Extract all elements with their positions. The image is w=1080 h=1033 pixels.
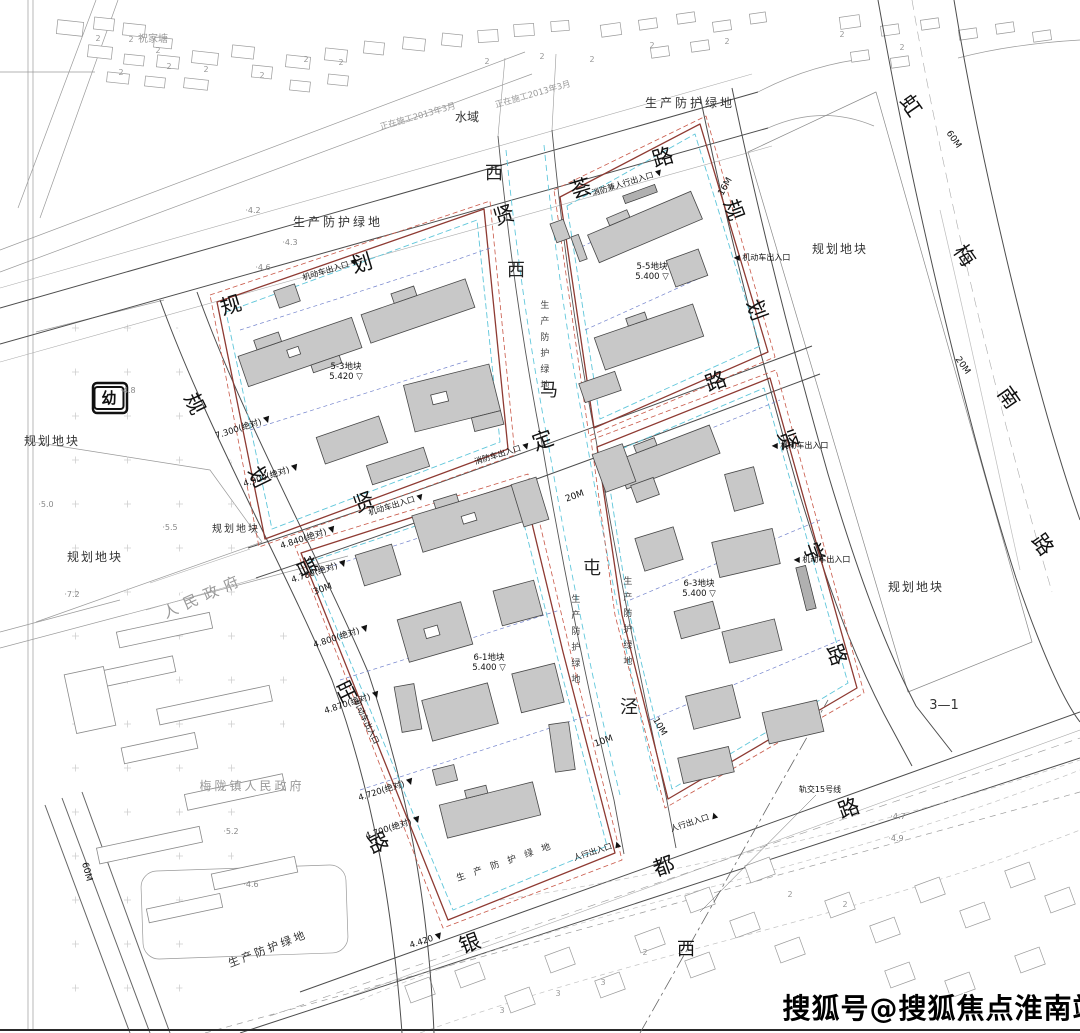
road-yindu-label: 路 <box>835 794 863 825</box>
storey-numbers-label: 2 <box>166 62 171 72</box>
storey-numbers-label: 2 <box>118 68 123 78</box>
entrances-label: 机动车出入口 ▼ <box>301 257 358 283</box>
road-yindu-label: 银 <box>456 929 484 960</box>
storey-numbers-label: 3 <box>499 1006 504 1016</box>
storey-numbers-label: 2 <box>95 34 100 44</box>
road-puwang-label: 规 <box>178 389 210 419</box>
storey-numbers-label: 2 <box>649 41 654 51</box>
watermark: 搜狐号@搜狐焦点淮南站 <box>782 992 1080 1026</box>
road-xianhui-label: 路 <box>649 143 676 173</box>
entrances-label: ◀ 机动车出入口 <box>772 441 829 451</box>
spot-elevations-label: ·5.2 <box>223 827 238 837</box>
road-elevations-label: 4.700(绝对) ▼ <box>364 814 422 841</box>
green-belts-label: 生产防护绿地 <box>226 928 309 970</box>
dimensions-label: 30M <box>312 582 334 599</box>
road-xianxue-label: 规 <box>718 196 749 224</box>
storey-numbers-label: 2 <box>155 46 160 56</box>
parcels-label: 规划地块 <box>212 524 260 536</box>
green-belts-label: 生产防护绿地 <box>621 576 632 672</box>
entrances-label: 消防兼人行出入口 ▼ <box>591 168 663 198</box>
entrances-label: 人行出入口 ▲ <box>572 839 621 863</box>
entrances-label: ◀ 机动车出入口 <box>734 253 791 263</box>
dimensions-label: 60M <box>78 861 93 882</box>
dimensions-label: 16M <box>717 176 736 198</box>
storey-numbers-label: 2 <box>203 65 208 75</box>
parcels-label: 祝家塘 <box>138 34 168 46</box>
green-belts-label: 生产防护绿地 <box>293 215 383 229</box>
entrances-label: 人行出入口 ▲ <box>669 810 718 834</box>
storey-numbers-label: 2 <box>642 948 647 958</box>
spot-elevations-label: ·4.2 <box>245 206 260 216</box>
spot-elevations-label: ·4.6 <box>255 263 270 273</box>
dimensions-label: 10M <box>593 734 615 751</box>
spot-elevations-label: ·4.6 <box>243 880 258 890</box>
green-belts-label: 生产防护绿地 <box>455 839 561 884</box>
road-yindu-label: 西 <box>677 939 695 961</box>
storey-numbers-label: 2 <box>259 71 264 81</box>
road-elevations-label: 4.840(绝对) ▼ <box>279 524 337 551</box>
spot-elevations-label: ·4.3 <box>282 238 297 248</box>
storey-numbers-label: 2 <box>589 55 594 65</box>
creek-ximatunjing-label: 泾 <box>620 697 638 719</box>
construction-notes-label: 正在施工2013年3月 <box>494 79 572 110</box>
dimensions-label: 20M <box>952 355 972 377</box>
road-xianhui-label: 贤 <box>490 201 517 231</box>
parcels-label: 梅陇镇人民政府 <box>199 779 304 793</box>
creek-ximatunjing-label: 屯 <box>583 558 601 580</box>
storey-numbers-label: 2 <box>539 52 544 62</box>
site-plan-canvas: 规划贤荟路规划普旺路贤定路规划贤学路银都路西虹梅南路西西马屯泾规划地块规划地块规… <box>0 0 1080 1033</box>
spot-elevations-label: ·5.5 <box>162 523 177 533</box>
parcels-label: 人民政府 <box>160 570 248 622</box>
block-marks-label: 5-3地块 5.420 ▽ <box>329 362 363 382</box>
parcels-label: 水域 <box>455 110 479 124</box>
transit-label: 轨交15号线 <box>799 785 841 795</box>
map-labels-layer: 规划贤荟路规划普旺路贤定路规划贤学路银都路西虹梅南路西西马屯泾规划地块规划地块规… <box>0 0 1080 1033</box>
entrances-label: ◀ 机动车出入口 <box>794 555 851 565</box>
entrances-label: 消防车出入口 ▼ <box>473 441 530 467</box>
parcels-label: 规划地块 <box>812 242 868 256</box>
road-xianhui-label: 规 <box>217 291 244 321</box>
storey-numbers-label: 2 <box>303 55 308 65</box>
road-xianxue-label: 路 <box>821 641 852 669</box>
creek-ximatunjing-label: 西 <box>507 260 525 282</box>
block-marks-label: 5-5地块 5.400 ▽ <box>635 262 669 282</box>
road-hongmeinan-label: 梅 <box>948 240 981 272</box>
road-yindu-label: 都 <box>650 852 678 883</box>
spot-elevations-label: ·5.0 <box>38 500 53 510</box>
road-elevations-label: 7.300(绝对) ▼ <box>214 414 272 441</box>
spot-elevations-label: ·4.7 <box>890 812 905 822</box>
road-elevations-label: 4.900(绝对) ▼ <box>242 462 300 489</box>
spot-elevations-label: ·4.8 <box>120 386 135 396</box>
dimensions-label: 20M <box>564 489 586 506</box>
storey-numbers-label: 3 <box>600 978 605 988</box>
block-marks-label: 6-3地块 5.400 ▽ <box>682 579 716 599</box>
spot-elevations-label: ·4.9 <box>888 834 903 844</box>
road-hongmeinan-label: 虹 <box>894 90 927 122</box>
creek-ximatunjing-label: 西 <box>485 163 503 185</box>
green-belts-label: 生产防护绿地 <box>538 300 549 396</box>
parcels-label: 规划地块 <box>24 434 80 448</box>
storey-numbers-label: 2 <box>128 35 133 45</box>
storey-numbers-label: 2 <box>724 37 729 47</box>
entrances-label: 机动车出入口 <box>351 698 381 745</box>
construction-notes-label: 正在施工2013年3月 <box>379 101 457 132</box>
parcels-label: 3—1 <box>929 698 959 714</box>
road-elevations-label: 4.800(绝对) ▼ <box>312 623 370 650</box>
storey-numbers-label: 2 <box>899 43 904 53</box>
green-belts-label: 生产防护绿地 <box>645 96 735 110</box>
parcels-label: 规划地块 <box>67 550 123 564</box>
storey-numbers-label: 2 <box>338 58 343 68</box>
green-belts-label: 生产防护绿地 <box>569 594 580 690</box>
storey-numbers-label: 2 <box>839 30 844 40</box>
parcels-label: 规划地块 <box>888 580 944 594</box>
road-hongmeinan-label: 南 <box>992 382 1025 414</box>
entrances-label: 机动车出入口 ▼ <box>367 492 424 518</box>
road-xianxue-label: 划 <box>741 296 772 324</box>
spot-elevations-label: ·7.2 <box>64 590 79 600</box>
block-marks-label: 6-1地块 5.400 ▽ <box>472 653 506 673</box>
storey-numbers-label: 2 <box>484 57 489 67</box>
road-xianding-label: 定 <box>529 426 557 457</box>
dimensions-label: 10M <box>650 716 669 738</box>
storey-numbers-label: 2 <box>787 890 792 900</box>
storey-numbers-label: 2 <box>842 900 847 910</box>
storey-numbers-label: 3 <box>555 989 560 999</box>
road-xianding-label: 路 <box>702 367 730 398</box>
road-elevations-label: 4.720(绝对) ▼ <box>357 776 415 803</box>
road-hongmeinan-label: 路 <box>1026 529 1059 561</box>
dimensions-label: 60M <box>943 129 963 151</box>
road-elevations-label: 4.420 ▼ <box>408 931 443 951</box>
